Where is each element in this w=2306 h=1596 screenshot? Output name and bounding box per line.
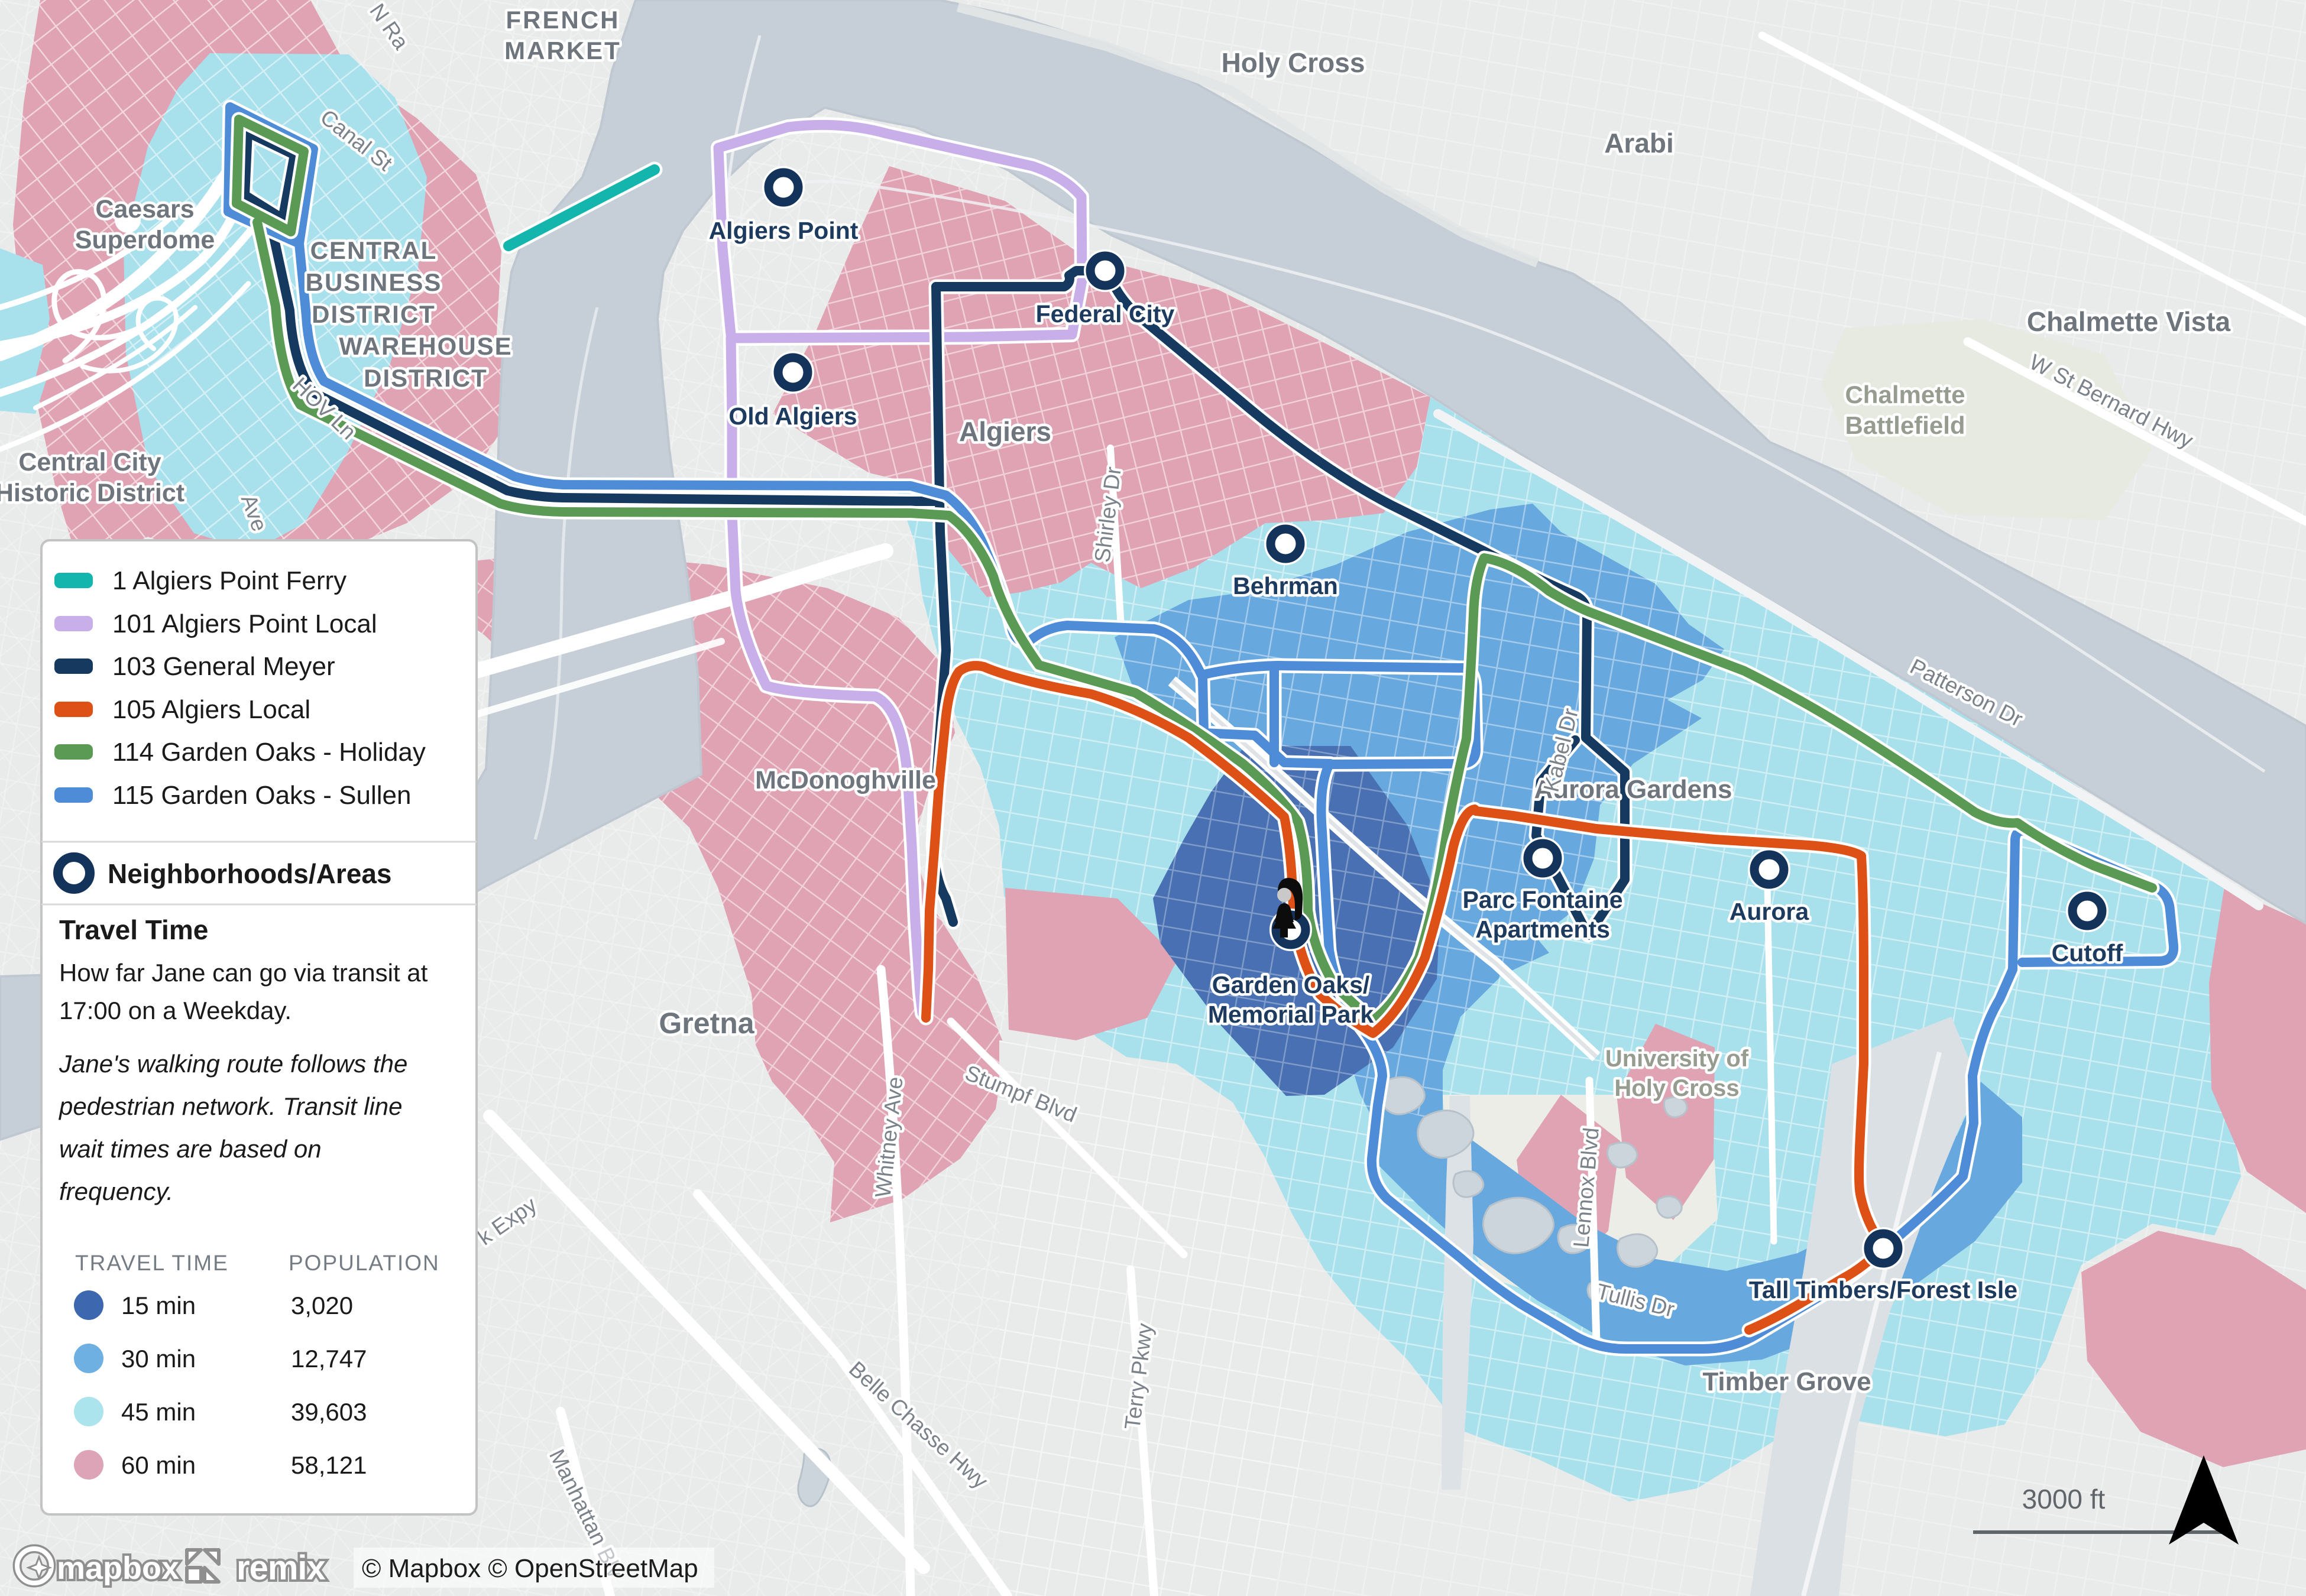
svg-text:How far Jane can go via transi: How far Jane can go via transit at: [59, 959, 428, 987]
svg-text:12,747: 12,747: [291, 1345, 367, 1373]
svg-text:Memorial Park: Memorial Park: [1208, 1001, 1374, 1028]
svg-text:WAREHOUSE: WAREHOUSE: [339, 332, 512, 360]
svg-text:frequency.: frequency.: [59, 1177, 173, 1205]
svg-text:McDonoghville: McDonoghville: [755, 766, 936, 794]
svg-text:Central City: Central City: [18, 448, 161, 476]
svg-text:Parc Fontaine: Parc Fontaine: [1462, 886, 1622, 913]
svg-text:Timber Grove: Timber Grove: [1702, 1367, 1871, 1396]
svg-text:15 min: 15 min: [121, 1292, 196, 1319]
svg-text:115 Garden Oaks - Sullen: 115 Garden Oaks - Sullen: [112, 781, 411, 810]
svg-text:Aurora: Aurora: [1729, 898, 1810, 925]
svg-text:Algiers Point: Algiers Point: [709, 217, 859, 244]
svg-text:BUSINESS: BUSINESS: [306, 268, 442, 296]
svg-text:1 Algiers Point Ferry: 1 Algiers Point Ferry: [112, 566, 346, 595]
svg-text:58,121: 58,121: [291, 1451, 367, 1479]
svg-text:pedestrian network. Transit li: pedestrian network. Transit line: [58, 1092, 403, 1120]
svg-text:105 Algiers Local: 105 Algiers Local: [112, 695, 310, 724]
svg-text:Gretna: Gretna: [659, 1007, 754, 1040]
svg-text:DISTRICT: DISTRICT: [312, 300, 436, 328]
svg-text:Caesars: Caesars: [95, 195, 194, 223]
svg-text:Neighborhoods/Areas: Neighborhoods/Areas: [108, 858, 392, 889]
svg-text:45 min: 45 min: [121, 1398, 196, 1426]
svg-text:Historic District: Historic District: [0, 479, 184, 507]
svg-text:Jane's walking route follows t: Jane's walking route follows the: [59, 1050, 407, 1078]
svg-text:39,603: 39,603: [291, 1398, 367, 1426]
svg-text:Travel Time: Travel Time: [59, 914, 208, 945]
svg-text:© Mapbox © OpenStreetMap: © Mapbox © OpenStreetMap: [362, 1554, 698, 1583]
svg-text:Holy Cross: Holy Cross: [1222, 47, 1365, 78]
svg-text:DISTRICT: DISTRICT: [364, 364, 488, 392]
svg-text:Federal City: Federal City: [1036, 300, 1175, 327]
svg-text:30 min: 30 min: [121, 1345, 196, 1373]
svg-text:remix: remix: [237, 1549, 326, 1587]
svg-text:3000 ft: 3000 ft: [2022, 1484, 2106, 1514]
svg-text:Arabi: Arabi: [1604, 128, 1674, 158]
svg-text:101 Algiers Point Local: 101 Algiers Point Local: [112, 609, 377, 638]
svg-text:17:00 on a Weekday.: 17:00 on a Weekday.: [59, 997, 292, 1024]
svg-text:Garden Oaks/: Garden Oaks/: [1212, 971, 1370, 998]
svg-text:Apartments: Apartments: [1475, 916, 1610, 943]
svg-text:Holy Cross: Holy Cross: [1614, 1075, 1739, 1101]
svg-text:Superdome: Superdome: [75, 226, 215, 254]
svg-text:60 min: 60 min: [121, 1451, 196, 1479]
svg-text:TRAVEL TIME: TRAVEL TIME: [75, 1251, 229, 1275]
svg-text:3,020: 3,020: [291, 1292, 353, 1319]
svg-text:Algiers: Algiers: [959, 416, 1051, 447]
svg-text:wait times are based on: wait times are based on: [59, 1135, 322, 1163]
svg-text:Chalmette: Chalmette: [1845, 381, 1965, 408]
svg-text:Cutoff: Cutoff: [2052, 939, 2123, 966]
svg-text:Chalmette Vista: Chalmette Vista: [2027, 306, 2231, 337]
svg-text:University of: University of: [1605, 1046, 1749, 1072]
svg-text:FRENCH: FRENCH: [506, 6, 620, 34]
svg-text:Old Algiers: Old Algiers: [728, 403, 857, 430]
svg-text:Tall Timbers/Forest Isle: Tall Timbers/Forest Isle: [1749, 1276, 2017, 1303]
svg-text:mapbox: mapbox: [57, 1550, 179, 1586]
svg-text:103 General Meyer: 103 General Meyer: [112, 652, 335, 681]
svg-text:Battlefield: Battlefield: [1845, 411, 1965, 439]
svg-text:CENTRAL: CENTRAL: [310, 236, 438, 264]
svg-text:Behrman: Behrman: [1233, 572, 1338, 599]
svg-text:POPULATION: POPULATION: [289, 1251, 440, 1275]
svg-text:MARKET: MARKET: [504, 37, 621, 64]
svg-text:114 Garden Oaks - Holiday: 114 Garden Oaks - Holiday: [112, 738, 426, 767]
